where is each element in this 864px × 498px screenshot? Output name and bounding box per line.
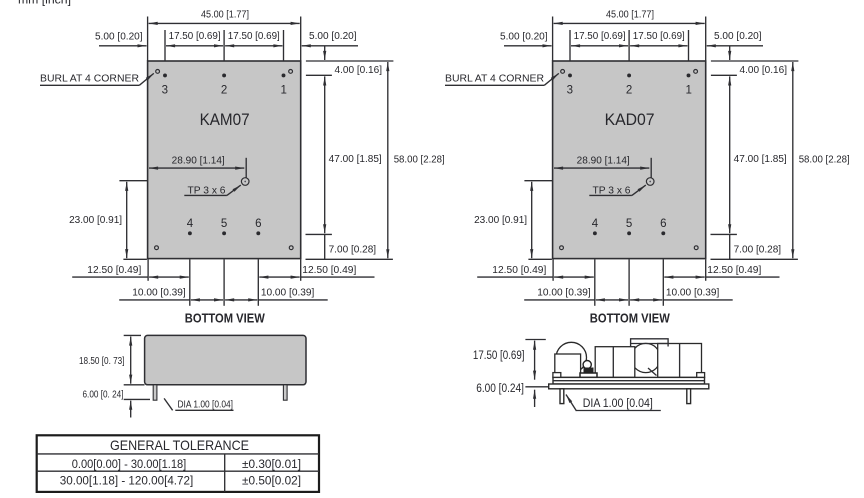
svg-text:mm [inch]: mm [inch] [18, 0, 71, 7]
svg-text:6.00 [0. 24]: 6.00 [0. 24] [83, 390, 124, 401]
svg-text:30.00[1.18] - 120.00[4.72]: 30.00[1.18] - 120.00[4.72] [60, 475, 194, 487]
svg-text:±0.50[0.02]: ±0.50[0.02] [242, 475, 301, 487]
svg-text:GENERAL TOLERANCE: GENERAL TOLERANCE [110, 437, 249, 453]
svg-text:0.00[0.00] - 30.00[1.18]: 0.00[0.00] - 30.00[1.18] [72, 459, 187, 471]
svg-text:DIA 1.00 [0.04]: DIA 1.00 [0.04] [583, 398, 653, 410]
svg-text:DIA 1.00 [0.04]: DIA 1.00 [0.04] [178, 400, 234, 411]
svg-text:17.50 [0.69]: 17.50 [0.69] [473, 350, 525, 362]
svg-text:±0.30[0.01]: ±0.30[0.01] [242, 459, 301, 471]
svg-text:KAD07: KAD07 [605, 110, 655, 129]
svg-text:6.00 [0.24]: 6.00 [0.24] [476, 383, 524, 395]
svg-text:KAM07: KAM07 [200, 110, 250, 129]
svg-text:18.50 [0. 73]: 18.50 [0. 73] [79, 356, 125, 367]
